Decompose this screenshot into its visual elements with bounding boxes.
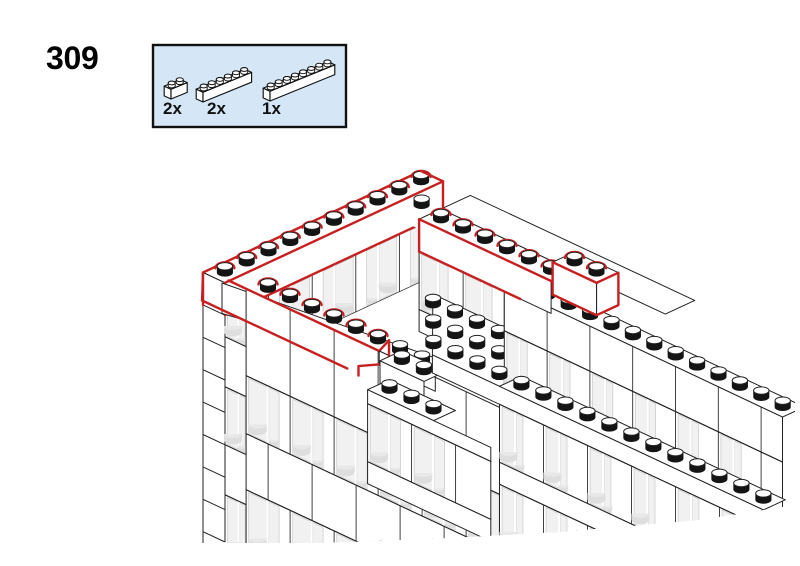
svg-text:2x: 2x xyxy=(207,99,226,118)
svg-text:1x: 1x xyxy=(262,99,281,118)
svg-text:2x: 2x xyxy=(163,99,182,118)
